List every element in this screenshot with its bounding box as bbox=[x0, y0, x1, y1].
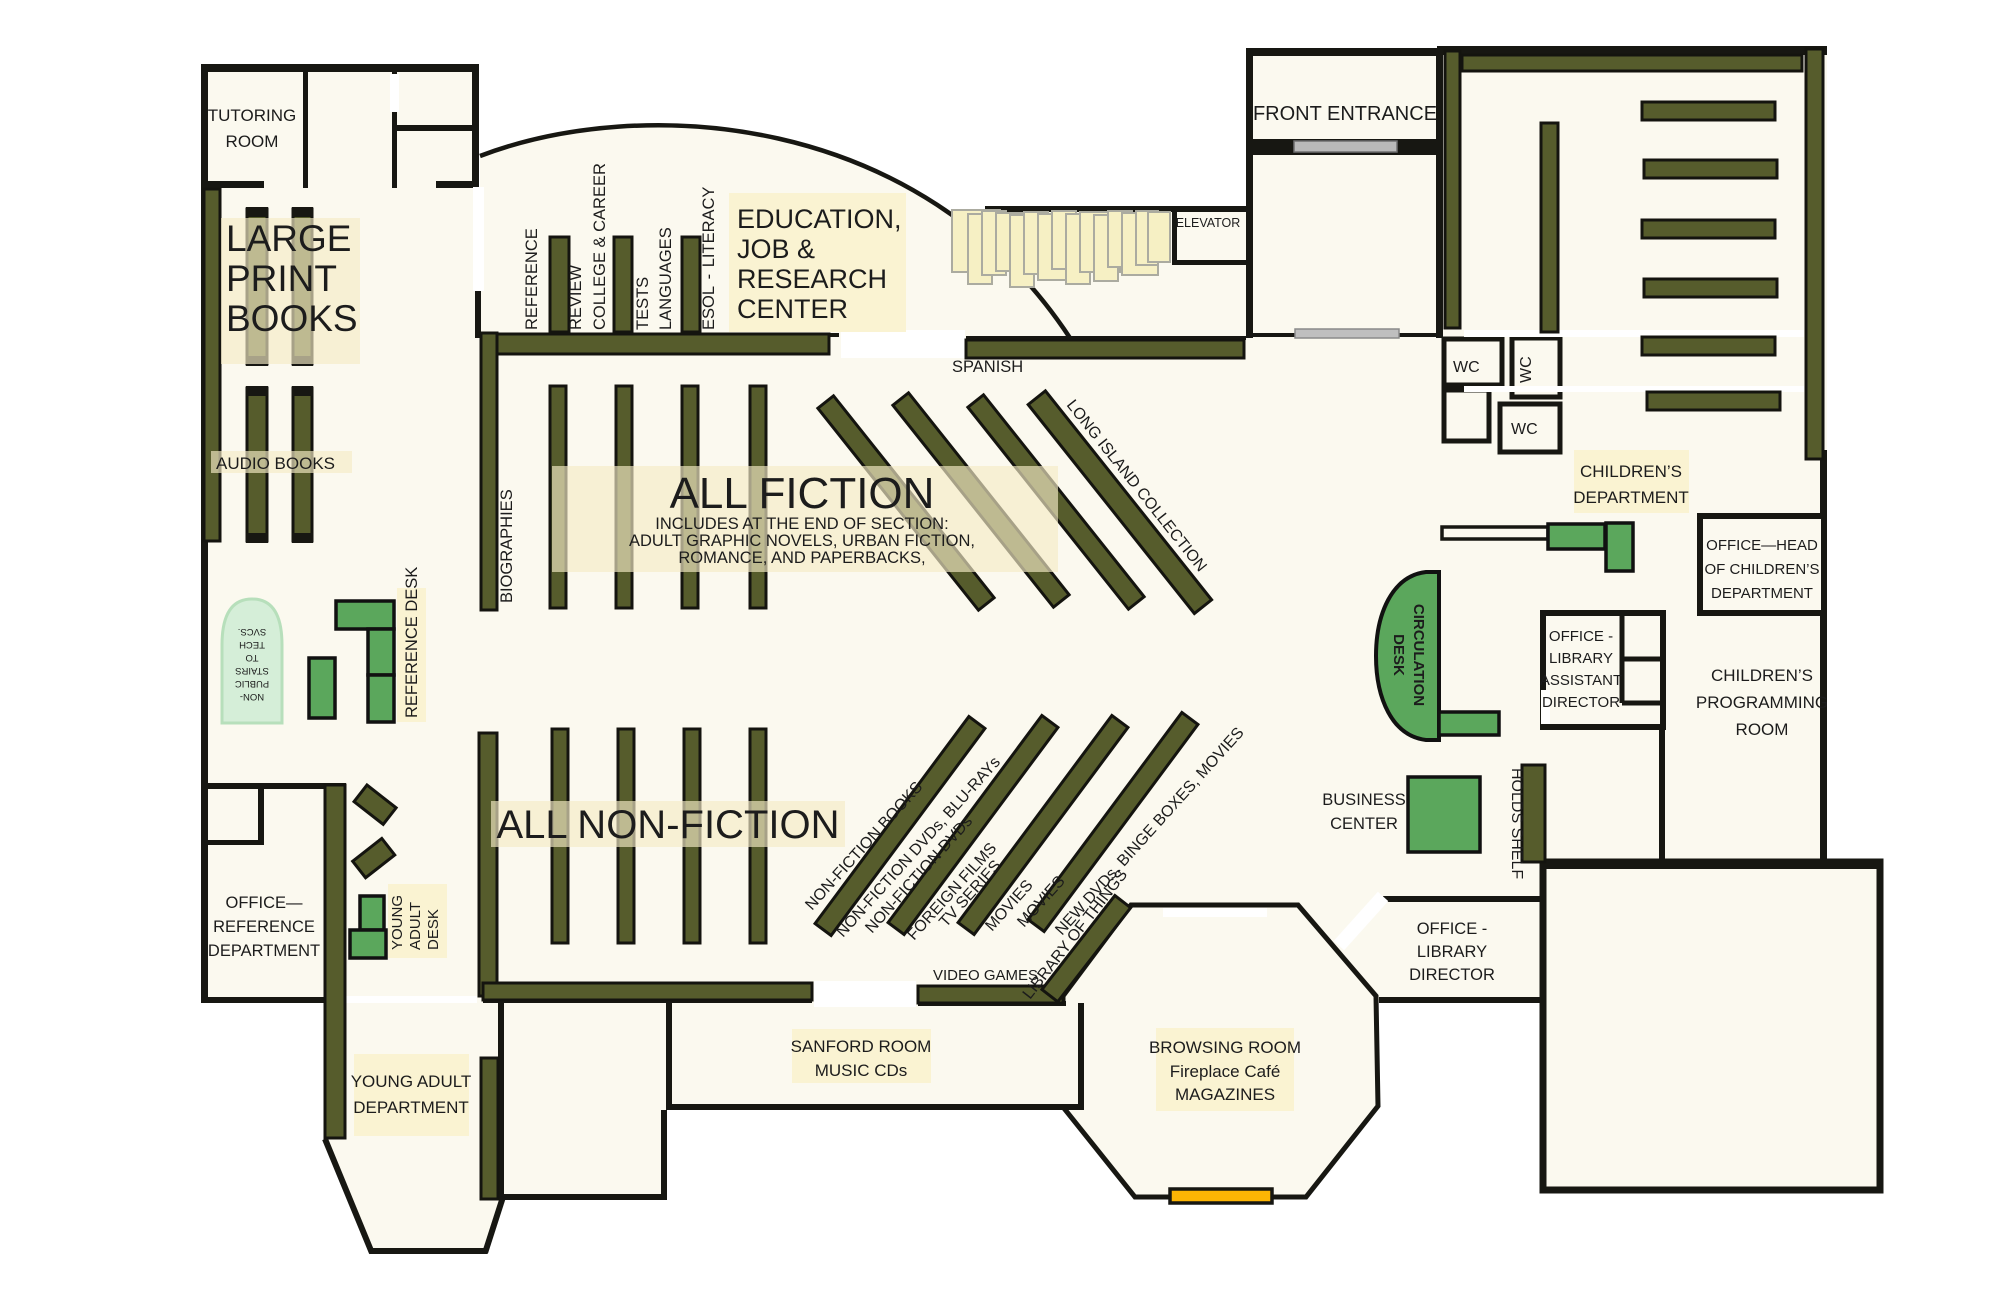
svg-text:DEPARTMENT: DEPARTMENT bbox=[353, 1098, 469, 1117]
svg-text:RESEARCH: RESEARCH bbox=[737, 264, 887, 294]
svg-text:MUSIC CDs: MUSIC CDs bbox=[815, 1061, 908, 1080]
svg-text:MAGAZINES: MAGAZINES bbox=[1175, 1085, 1275, 1104]
svg-text:DIRECTOR: DIRECTOR bbox=[1409, 966, 1495, 984]
svg-text:HOLDS SHELF: HOLDS SHELF bbox=[1508, 768, 1525, 879]
svg-text:TUTORING: TUTORING bbox=[208, 106, 296, 125]
svg-text:ALL NON-FICTION: ALL NON-FICTION bbox=[497, 803, 840, 847]
svg-text:CIRCULATION: CIRCULATION bbox=[1410, 604, 1427, 706]
svg-text:AUDIO BOOKS: AUDIO BOOKS bbox=[216, 454, 335, 473]
svg-text:TECH: TECH bbox=[239, 639, 265, 650]
svg-text:YOUNG ADULT: YOUNG ADULT bbox=[351, 1072, 472, 1091]
svg-text:BROWSING ROOM: BROWSING ROOM bbox=[1149, 1038, 1301, 1057]
svg-text:OF CHILDREN’S: OF CHILDREN’S bbox=[1704, 561, 1819, 578]
svg-text:ESOL - LITERACY: ESOL - LITERACY bbox=[700, 187, 718, 330]
svg-text:WC: WC bbox=[1518, 356, 1535, 383]
svg-text:ALL FICTION: ALL FICTION bbox=[670, 469, 935, 518]
svg-text:PROGRAMMING: PROGRAMMING bbox=[1696, 693, 1828, 712]
svg-text:ROOM: ROOM bbox=[1736, 720, 1789, 739]
svg-text:EDUCATION,: EDUCATION, bbox=[737, 204, 902, 234]
svg-text:CENTER: CENTER bbox=[737, 294, 848, 324]
svg-text:FRONT ENTRANCE: FRONT ENTRANCE bbox=[1253, 103, 1437, 125]
svg-text:JOB &: JOB & bbox=[737, 234, 815, 264]
svg-text:BOOKS: BOOKS bbox=[226, 298, 358, 339]
svg-text:SPANISH: SPANISH bbox=[952, 358, 1023, 376]
svg-text:LIBRARY: LIBRARY bbox=[1417, 943, 1487, 961]
svg-text:WC: WC bbox=[1511, 421, 1538, 438]
svg-text:BUSINESS: BUSINESS bbox=[1322, 791, 1405, 809]
svg-text:OFFICE -: OFFICE - bbox=[1549, 628, 1613, 645]
svg-text:OFFICE—HEAD: OFFICE—HEAD bbox=[1706, 537, 1818, 554]
svg-text:REFERENCE: REFERENCE bbox=[213, 918, 315, 936]
svg-text:LARGE: LARGE bbox=[226, 218, 351, 259]
svg-text:ADULT: ADULT bbox=[407, 902, 424, 950]
svg-text:WC: WC bbox=[1453, 359, 1480, 376]
svg-text:Fireplace Café: Fireplace Café bbox=[1170, 1062, 1281, 1081]
svg-text:DEPARTMENT: DEPARTMENT bbox=[1711, 585, 1813, 602]
svg-text:TESTS: TESTS bbox=[634, 277, 652, 330]
svg-text:BIOGRAPHIES: BIOGRAPHIES bbox=[498, 489, 516, 603]
svg-text:VIDEO GAMES: VIDEO GAMES bbox=[933, 967, 1038, 984]
svg-text:OFFICE -: OFFICE - bbox=[1417, 920, 1488, 938]
svg-text:REFERENCE: REFERENCE bbox=[523, 228, 541, 330]
svg-text:SANFORD ROOM: SANFORD ROOM bbox=[791, 1037, 932, 1056]
svg-text:ASSISTANT: ASSISTANT bbox=[1540, 672, 1622, 689]
svg-text:LANGUAGES: LANGUAGES bbox=[657, 227, 675, 330]
svg-text:ADULT GRAPHIC NOVELS, URBAN FI: ADULT GRAPHIC NOVELS, URBAN FICTION, bbox=[629, 532, 975, 550]
svg-text:DEPARTMENT: DEPARTMENT bbox=[1573, 488, 1689, 507]
svg-text:REVIEW: REVIEW bbox=[567, 264, 585, 330]
svg-text:SVCS.: SVCS. bbox=[238, 626, 267, 637]
svg-text:DEPARTMENT: DEPARTMENT bbox=[208, 942, 320, 960]
svg-text:PRINT: PRINT bbox=[226, 258, 337, 299]
svg-text:DESK: DESK bbox=[1390, 634, 1407, 676]
svg-text:REFERENCE DESK: REFERENCE DESK bbox=[403, 567, 421, 718]
svg-text:NON-: NON- bbox=[240, 691, 264, 702]
svg-text:LIBRARY: LIBRARY bbox=[1549, 650, 1613, 667]
svg-text:INCLUDES AT THE END OF SECTION: INCLUDES AT THE END OF SECTION: bbox=[655, 515, 948, 533]
svg-text:CENTER: CENTER bbox=[1330, 815, 1398, 833]
svg-text:COLLEGE & CAREER: COLLEGE & CAREER bbox=[591, 163, 609, 330]
svg-text:YOUNG: YOUNG bbox=[389, 895, 406, 950]
svg-text:DESK: DESK bbox=[425, 909, 442, 950]
svg-text:ROOM: ROOM bbox=[226, 132, 279, 151]
svg-text:STAIRS: STAIRS bbox=[235, 665, 269, 676]
svg-text:TO: TO bbox=[245, 652, 258, 663]
svg-text:ELEVATOR: ELEVATOR bbox=[1176, 216, 1241, 230]
svg-text:OFFICE—: OFFICE— bbox=[226, 894, 303, 912]
svg-text:CHILDREN’S: CHILDREN’S bbox=[1711, 666, 1813, 685]
svg-text:CHILDREN’S: CHILDREN’S bbox=[1580, 462, 1682, 481]
svg-text:ROMANCE, AND PAPERBACKS,: ROMANCE, AND PAPERBACKS, bbox=[678, 549, 925, 567]
svg-text:DIRECTOR: DIRECTOR bbox=[1542, 694, 1620, 711]
svg-text:PUBLIC: PUBLIC bbox=[235, 678, 269, 689]
